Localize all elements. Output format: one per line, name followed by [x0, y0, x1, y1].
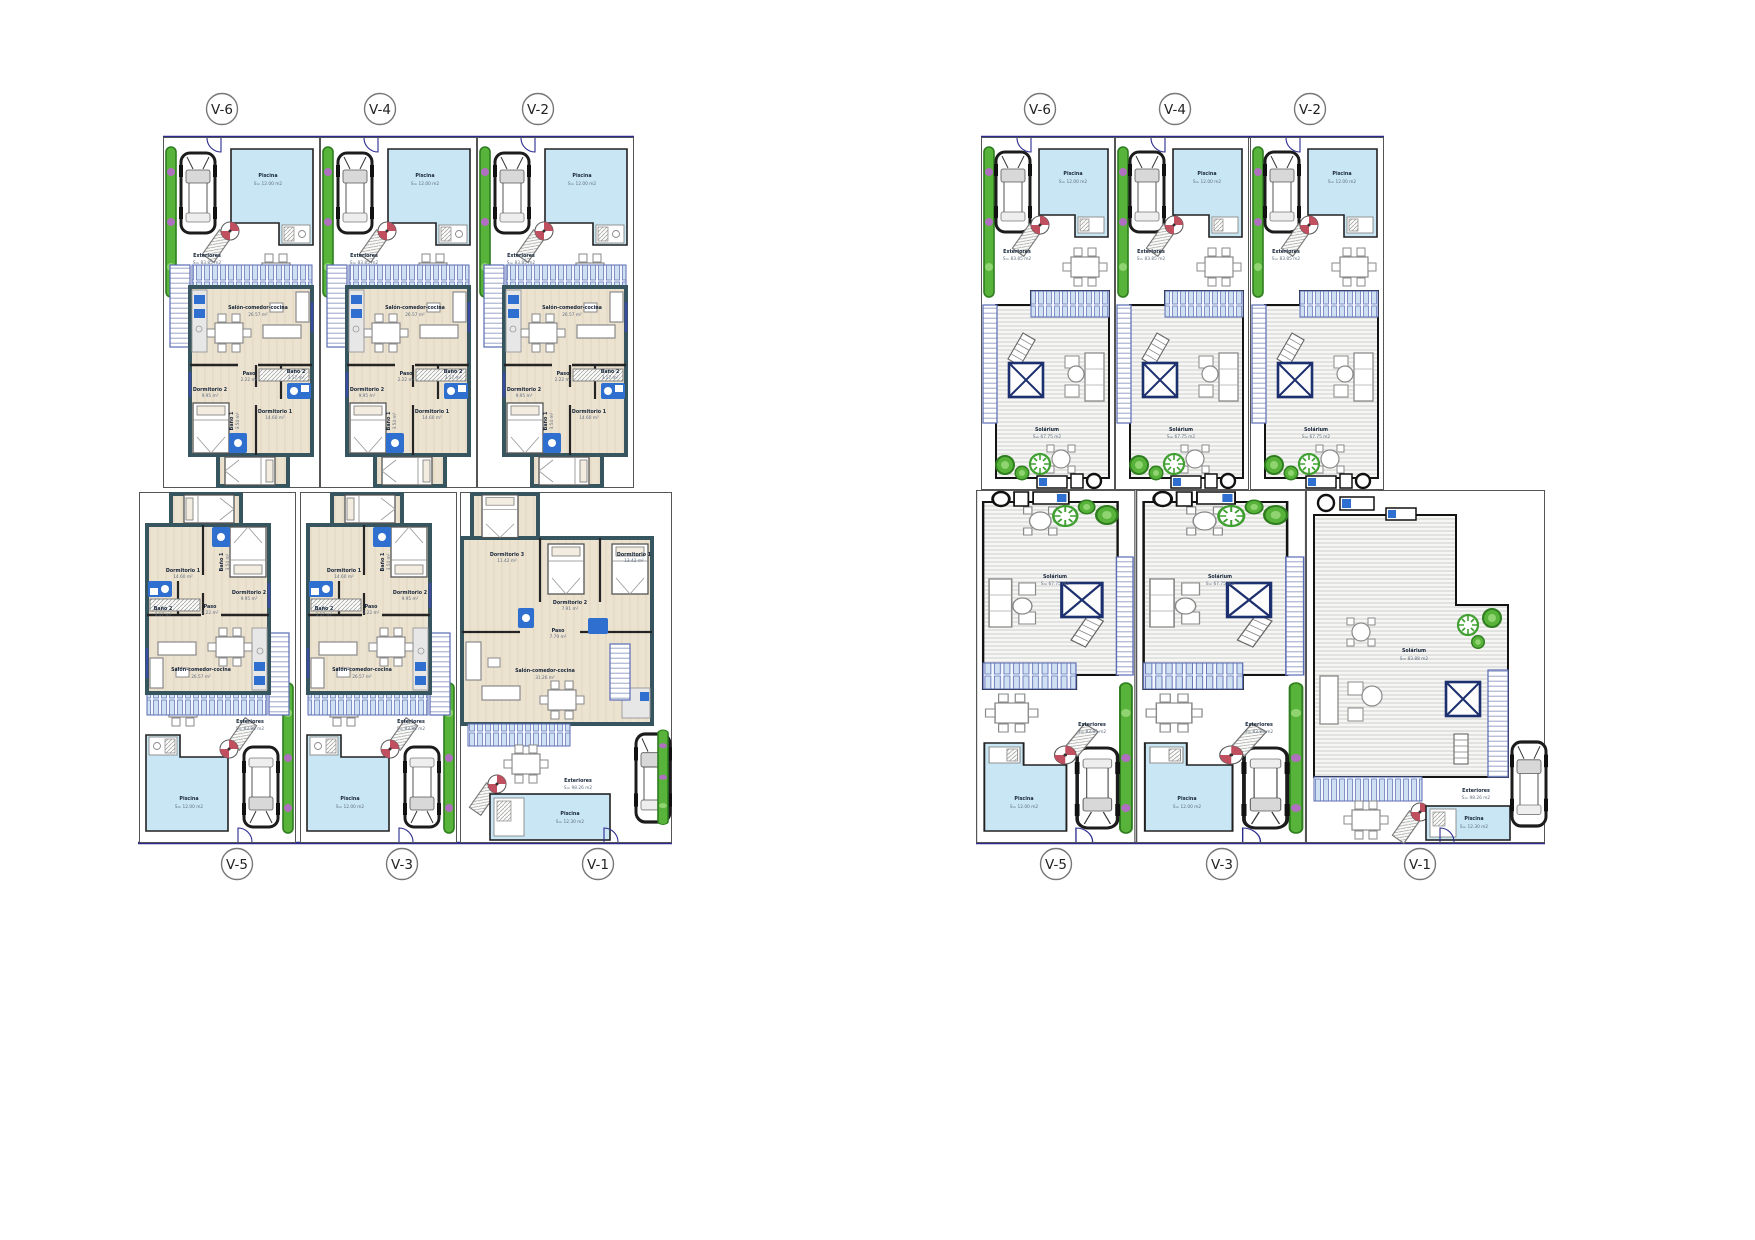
svg-text:Exteriores: Exteriores: [1003, 249, 1031, 255]
unit-v5-solarium: [977, 491, 1135, 843]
svg-text:Dormitorio 1: Dormitorio 1: [415, 409, 449, 415]
svg-text:9.95 m²: 9.95 m²: [241, 596, 258, 602]
svg-text:26.57 m²: 26.57 m²: [352, 674, 372, 680]
floor-plan-drawing: Piscina S= 12.00 m2 Exteriores S= 83.85 …: [0, 0, 1755, 1240]
svg-text:Baño 2: Baño 2: [444, 369, 463, 375]
svg-text:Salón-comedor-cocina: Salón-comedor-cocina: [332, 666, 392, 673]
unit-badge-v3: V-3: [1211, 857, 1233, 873]
svg-text:Paso: Paso: [557, 371, 570, 377]
svg-text:S= 12.00 m2: S= 12.00 m2: [1059, 179, 1088, 185]
room-label-dorm2: Dormitorio 2: [193, 387, 227, 393]
svg-text:7.79 m²: 7.79 m²: [550, 634, 567, 640]
svg-text:Solárium: Solárium: [1043, 573, 1067, 580]
exterior-label: Exteriores: [193, 253, 221, 259]
solarium-label: Solárium: [1035, 426, 1059, 433]
svg-text:26.57 m²: 26.57 m²: [405, 312, 425, 318]
pool-area: S= 12.00 m2: [254, 181, 283, 187]
svg-text:Piscina: Piscina: [1197, 171, 1216, 177]
svg-text:Exteriores: Exteriores: [1462, 788, 1490, 794]
svg-text:S= 67.75 m2: S= 67.75 m2: [1041, 581, 1070, 587]
room-area-bano1: 3.54 m²: [235, 412, 241, 429]
svg-text:S= 12.00 m2: S= 12.00 m2: [1193, 179, 1222, 185]
svg-text:Piscina: Piscina: [1464, 816, 1483, 822]
svg-text:2.22 m²: 2.22 m²: [363, 610, 380, 616]
svg-text:Baño 1: Baño 1: [219, 553, 225, 572]
svg-text:14.60 m²: 14.60 m²: [334, 574, 354, 580]
svg-text:Baño 2: Baño 2: [601, 369, 620, 375]
svg-text:2.22 m²: 2.22 m²: [555, 377, 572, 383]
room-area-bano2: 3.17 m²: [288, 375, 305, 381]
unit-badge-v4: V-4: [1164, 102, 1186, 118]
room-area-dorm3: 11.42 m²: [497, 558, 517, 564]
svg-text:Piscina: Piscina: [560, 811, 579, 817]
svg-text:Exteriores: Exteriores: [1137, 249, 1165, 255]
svg-text:9.95 m²: 9.95 m²: [516, 393, 533, 399]
svg-text:Piscina: Piscina: [179, 796, 198, 802]
svg-text:S= 12.00 m2: S= 12.00 m2: [1328, 179, 1357, 185]
room-area-dorm1: 14.60 m²: [265, 415, 285, 421]
svg-text:Dormitorio 2: Dormitorio 2: [350, 387, 384, 393]
svg-text:Salón-comedor-cocina: Salón-comedor-cocina: [385, 304, 445, 311]
ground-floor-panel: Piscina S= 12.00 m2 Exteriores S= 83.85 …: [138, 94, 672, 880]
room-label-dorm1: Dormitorio 1: [258, 409, 292, 415]
svg-text:S= 83.85 m2: S= 83.85 m2: [397, 726, 426, 732]
unit-badge-v5: V-5: [1045, 857, 1067, 873]
svg-text:Dormitorio 1: Dormitorio 1: [166, 568, 200, 574]
svg-text:Exteriores: Exteriores: [1245, 722, 1273, 728]
room-label-salon: Salón-comedor-cocina: [228, 304, 288, 311]
svg-text:3.54 m²: 3.54 m²: [225, 553, 231, 570]
svg-text:26.57 m²: 26.57 m²: [562, 312, 582, 318]
svg-text:Dormitorio 1: Dormitorio 1: [617, 552, 651, 558]
svg-text:S= 83.85 m2: S= 83.85 m2: [1245, 729, 1274, 735]
svg-text:Baño 2: Baño 2: [315, 606, 334, 612]
svg-text:S= 67.75 m2: S= 67.75 m2: [1167, 434, 1196, 440]
unit-badge-v6: V-6: [1029, 102, 1051, 118]
unit-badge-v1: V-1: [1409, 857, 1431, 873]
svg-text:3.54 m²: 3.54 m²: [392, 412, 398, 429]
svg-text:Salón-comedor-cocina: Salón-comedor-cocina: [542, 304, 602, 311]
svg-text:Piscina: Piscina: [572, 173, 591, 179]
unit-badge-v1: V-1: [587, 857, 609, 873]
svg-text:14.60 m²: 14.60 m²: [579, 415, 599, 421]
svg-text:Exteriores: Exteriores: [507, 253, 535, 259]
svg-text:Exteriores: Exteriores: [1272, 249, 1300, 255]
unit-v6-ground: [164, 138, 320, 488]
svg-text:Salón-comedor-cocina: Salón-comedor-cocina: [171, 666, 231, 673]
svg-text:3.17 m²: 3.17 m²: [316, 612, 333, 618]
svg-text:S= 12.30 m2: S= 12.30 m2: [556, 819, 585, 825]
unit-v1-solarium: [1307, 491, 1549, 844]
svg-text:Paso: Paso: [552, 628, 565, 634]
svg-text:Piscina: Piscina: [415, 173, 434, 179]
svg-text:Salón-comedor-cocina: Salón-comedor-cocina: [515, 667, 575, 674]
svg-text:Piscina: Piscina: [1014, 796, 1033, 802]
svg-text:S= 12.00 m2: S= 12.00 m2: [411, 181, 440, 187]
unit-v2-ground: [478, 138, 634, 488]
svg-text:Exteriores: Exteriores: [564, 778, 592, 784]
svg-text:S= 67.75 m2: S= 67.75 m2: [1206, 581, 1235, 587]
unit-v3-solarium: [1137, 491, 1306, 843]
room-area-paso: 2.22 m²: [241, 377, 258, 383]
svg-text:Dormitorio 2: Dormitorio 2: [507, 387, 541, 393]
svg-text:S= 98.26 m2: S= 98.26 m2: [1462, 795, 1491, 801]
svg-text:Exteriores: Exteriores: [350, 253, 378, 259]
svg-text:3.17 m²: 3.17 m²: [155, 612, 172, 618]
svg-text:Exteriores: Exteriores: [236, 719, 264, 725]
unit-v4-ground: [321, 138, 477, 488]
svg-text:Paso: Paso: [365, 604, 378, 610]
svg-text:S= 12.00 m2: S= 12.00 m2: [175, 804, 204, 810]
solarium-panel: Piscina S= 12.00 m2 Exteriores S= 83.85 …: [976, 94, 1548, 880]
svg-text:S= 83.85 m2: S= 83.85 m2: [1003, 256, 1032, 262]
room-label-paso: Paso: [243, 371, 256, 377]
svg-text:Exteriores: Exteriores: [397, 719, 425, 725]
svg-text:7.91 m²: 7.91 m²: [562, 606, 579, 612]
svg-text:Solárium: Solárium: [1402, 647, 1426, 654]
svg-text:S= 83.85 m2: S= 83.85 m2: [1272, 256, 1301, 262]
svg-text:Dormitorio 1: Dormitorio 1: [327, 568, 361, 574]
svg-text:Baño 1: Baño 1: [380, 553, 386, 572]
exterior-area: S= 83.85 m2: [193, 260, 222, 266]
svg-text:S= 12.00 m2: S= 12.00 m2: [1010, 804, 1039, 810]
svg-text:S= 12.00 m2: S= 12.00 m2: [1173, 804, 1202, 810]
svg-text:S= 83.85 m2: S= 83.85 m2: [507, 260, 536, 266]
svg-text:13.42 m²: 13.42 m²: [624, 558, 644, 564]
svg-text:9.95 m²: 9.95 m²: [359, 393, 376, 399]
svg-text:3.17 m²: 3.17 m²: [445, 375, 462, 381]
svg-text:Piscina: Piscina: [1177, 796, 1196, 802]
svg-text:S= 83.85 m2: S= 83.85 m2: [1078, 729, 1107, 735]
room-label-bano2: Baño 2: [287, 369, 306, 375]
svg-text:9.95 m²: 9.95 m²: [402, 596, 419, 602]
room-area-salon: 26.57 m²: [248, 312, 268, 318]
room-label-dorm3: Dormitorio 3: [490, 552, 524, 558]
svg-text:2.22 m²: 2.22 m²: [202, 610, 219, 616]
svg-text:14.60 m²: 14.60 m²: [173, 574, 193, 580]
svg-text:Dormitorio 1: Dormitorio 1: [572, 409, 606, 415]
svg-text:Dormitorio 2: Dormitorio 2: [553, 600, 587, 606]
svg-text:3.54 m²: 3.54 m²: [549, 412, 555, 429]
unit-badge-v2: V-2: [527, 102, 549, 118]
svg-text:S= 98.26 m2: S= 98.26 m2: [564, 785, 593, 791]
svg-text:2.22 m²: 2.22 m²: [398, 377, 415, 383]
svg-text:Dormitorio 2: Dormitorio 2: [232, 590, 266, 596]
svg-text:Solárium: Solárium: [1304, 426, 1328, 433]
svg-text:Paso: Paso: [204, 604, 217, 610]
svg-text:Exteriores: Exteriores: [1078, 722, 1106, 728]
room-label-bano1: Baño 1: [229, 412, 235, 431]
svg-text:14.60 m²: 14.60 m²: [422, 415, 442, 421]
unit-badge-v3: V-3: [391, 857, 413, 873]
svg-text:31.26 m²: 31.26 m²: [535, 675, 555, 681]
unit-badge-v5: V-5: [226, 857, 248, 873]
svg-text:S= 83.88 m2: S= 83.88 m2: [1400, 656, 1429, 662]
svg-text:S= 83.85 m2: S= 83.85 m2: [1137, 256, 1166, 262]
svg-text:Piscina: Piscina: [1332, 171, 1351, 177]
unit-badge-v6: V-6: [211, 102, 233, 118]
svg-text:Paso: Paso: [400, 371, 413, 377]
svg-text:Solárium: Solárium: [1169, 426, 1193, 433]
svg-text:Solárium: Solárium: [1208, 573, 1232, 580]
svg-text:S= 12.00 m2: S= 12.00 m2: [336, 804, 365, 810]
svg-text:Baño 2: Baño 2: [154, 606, 173, 612]
svg-text:3.54 m²: 3.54 m²: [386, 553, 392, 570]
svg-text:S= 12.00 m2: S= 12.00 m2: [568, 181, 597, 187]
svg-text:S= 83.85 m2: S= 83.85 m2: [236, 726, 265, 732]
svg-text:S= 83.85 m2: S= 83.85 m2: [350, 260, 379, 266]
unit-badge-v4: V-4: [369, 102, 391, 118]
svg-text:S= 67.75 m2: S= 67.75 m2: [1302, 434, 1331, 440]
svg-text:Piscina: Piscina: [340, 796, 359, 802]
svg-text:Baño 1: Baño 1: [386, 412, 392, 431]
svg-text:Piscina: Piscina: [1063, 171, 1082, 177]
svg-text:S= 12.30 m2: S= 12.30 m2: [1460, 824, 1489, 830]
svg-text:Baño 1: Baño 1: [543, 412, 549, 431]
solarium-area: S= 67.75 m2: [1033, 434, 1062, 440]
svg-text:3.17 m²: 3.17 m²: [602, 375, 619, 381]
svg-text:Dormitorio 2: Dormitorio 2: [393, 590, 427, 596]
pool-label: Piscina: [258, 173, 277, 179]
room-area-dorm2: 9.95 m²: [202, 393, 219, 399]
svg-text:26.57 m²: 26.57 m²: [191, 674, 211, 680]
unit-badge-v2: V-2: [1299, 102, 1321, 118]
